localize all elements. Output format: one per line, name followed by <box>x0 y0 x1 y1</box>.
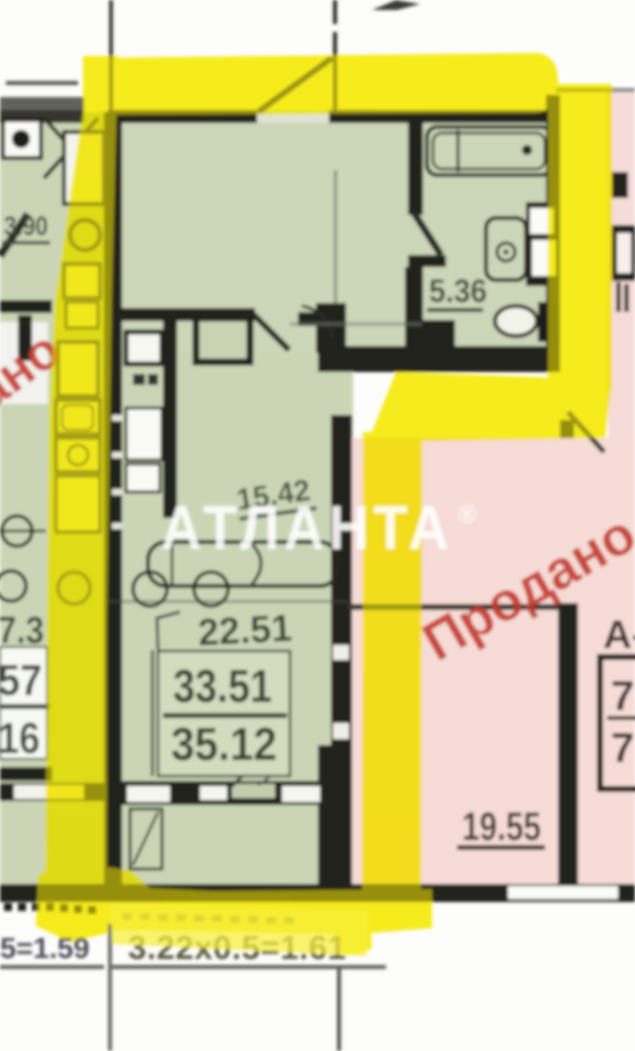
svg-text:АТЛАНТА: АТЛАНТА <box>161 494 453 562</box>
svg-text:3.90: 3.90 <box>4 211 48 241</box>
svg-text:19.55: 19.55 <box>462 805 541 849</box>
svg-text:33.51: 33.51 <box>173 660 272 712</box>
svg-text:5.36: 5.36 <box>429 273 487 309</box>
svg-text:7: 7 <box>611 724 634 771</box>
svg-text:35.12: 35.12 <box>171 718 277 770</box>
svg-text:7,: 7, <box>611 672 635 719</box>
svg-text:7.3: 7.3 <box>0 610 44 652</box>
svg-text:А-: А- <box>603 613 635 657</box>
svg-text:.5=1.59: .5=1.59 <box>0 933 90 965</box>
svg-text:22.51: 22.51 <box>197 608 293 655</box>
svg-text:16: 16 <box>0 714 40 763</box>
svg-text:®: ® <box>458 501 477 529</box>
svg-text:57: 57 <box>0 656 42 705</box>
